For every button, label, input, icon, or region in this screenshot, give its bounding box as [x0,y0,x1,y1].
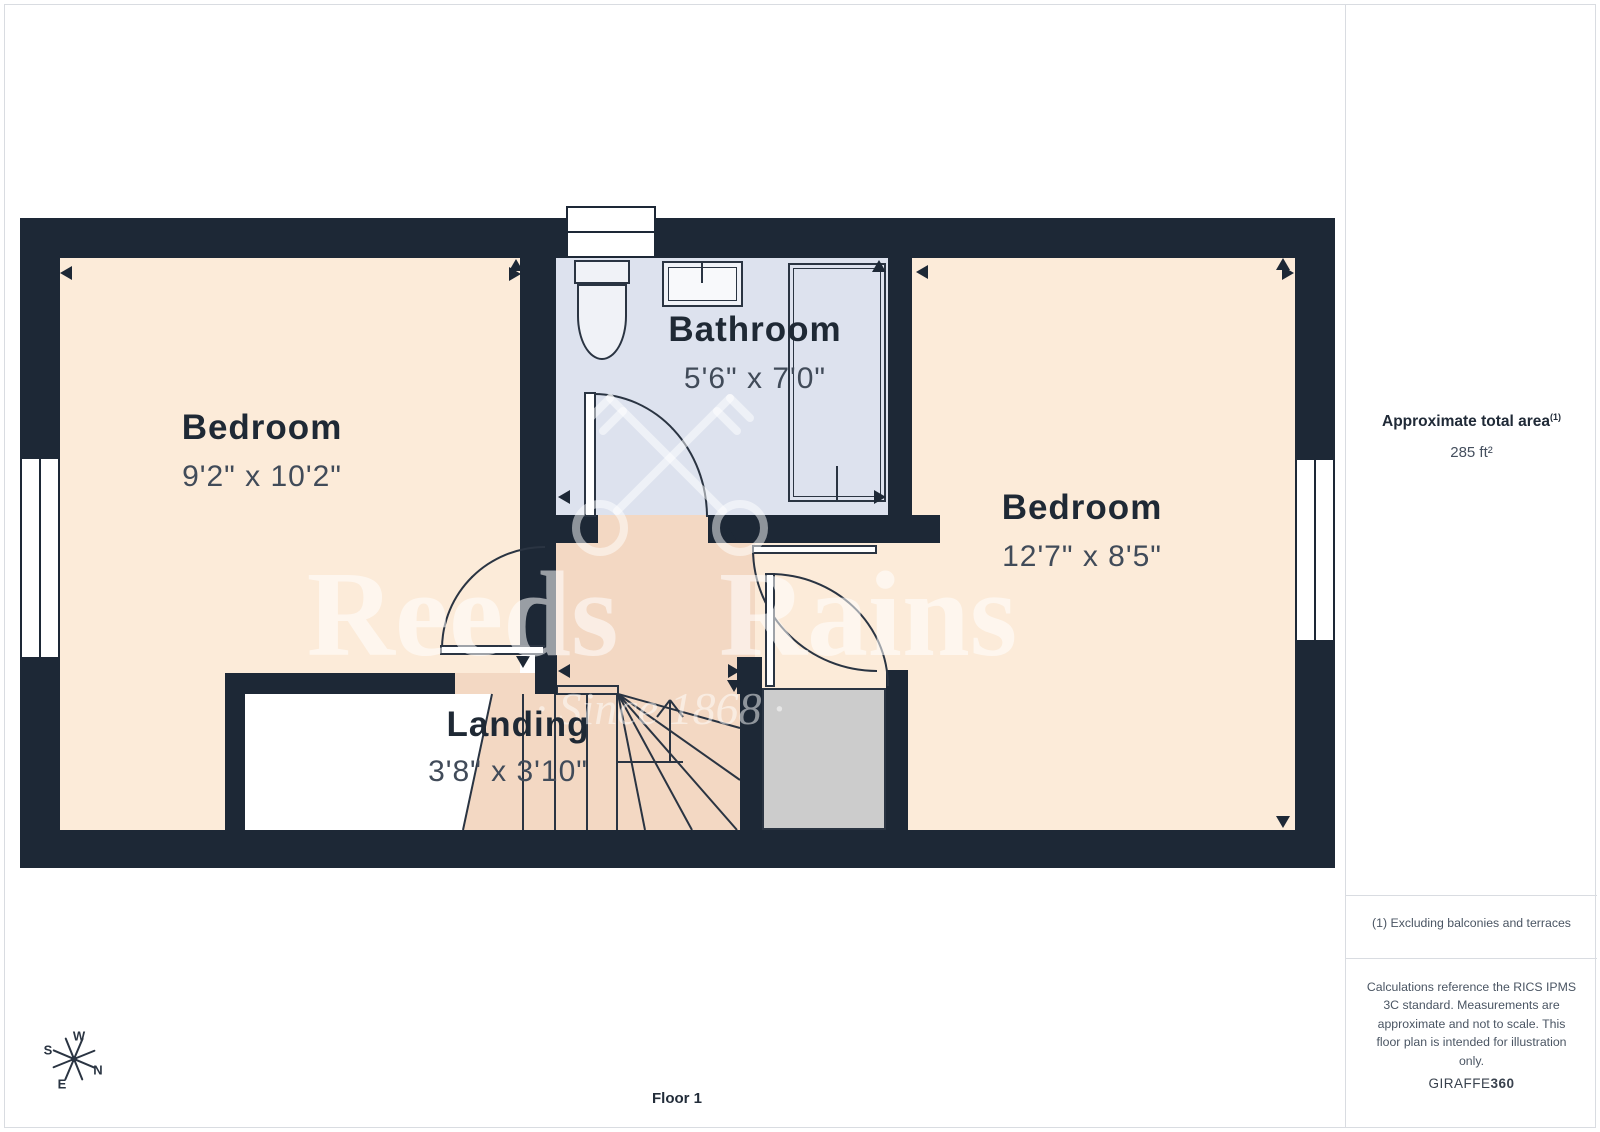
room-dims-bedroom-left: 9'2" x 10'2" [182,460,342,494]
dimension-arrow [558,490,570,504]
toilet-icon [574,260,630,284]
dimension-arrow [874,490,886,504]
dimension-arrow [516,656,530,668]
sidebar-divider [1346,895,1597,896]
compass-label-s: S [44,1043,53,1058]
total-area-superscript: (1) [1550,412,1561,422]
dimension-arrow [728,664,740,678]
room-dims-bathroom: 5'6" x 7'0" [684,362,826,396]
wall-bathroom-bottom-right [708,515,940,543]
dimension-arrow [1276,816,1290,828]
dimension-arrow [722,528,736,540]
window-mullion [39,459,41,657]
disclaimer-text: Calculations reference the RICS IPMS 3C … [1364,978,1579,1070]
wall-left-upper [20,218,60,457]
window-mullion [568,231,654,233]
brand-logo: GIRAFFE360 [1346,1076,1597,1091]
door-leaf [440,645,545,655]
dimension-arrow [558,664,570,678]
room-label-bedroom-left: Bedroom [182,408,343,448]
shower-drain-icon [836,466,838,502]
window-right [1295,458,1335,642]
floor-label: Floor 1 [652,1090,702,1107]
window-skylight [566,206,656,258]
dimension-arrow [1282,266,1294,280]
room-label-landing: Landing [446,705,589,745]
compass-rose-icon: W S N E [29,1014,119,1104]
compass-label-n: N [93,1063,102,1078]
dimension-arrow [916,265,928,279]
wall-right-upper [1295,218,1335,458]
sink-faucet-icon [701,261,703,283]
wall-right-lower [1295,640,1335,868]
door-threshold [455,673,537,694]
compass-label-w: W [73,1029,85,1044]
door-leaf [584,392,596,517]
wardrobe-icon [762,688,886,830]
sidebar-divider [1346,958,1597,959]
total-area-value: 285 ft² [1346,444,1597,461]
total-area-text: Approximate total area [1382,413,1550,430]
wall-bottom [20,830,1335,868]
room-label-bathroom: Bathroom [668,310,841,350]
wall-top [20,218,1335,258]
brand-name: GIRAFFE [1428,1076,1490,1091]
compass-label-e: E [58,1077,67,1092]
door-leaf [752,545,877,554]
room-label-bedroom-right: Bedroom [1002,488,1163,528]
area-footnote: (1) Excluding balconies and terraces [1346,916,1597,930]
window-mullion [1314,460,1316,640]
wall-stub-landing-left [535,655,557,694]
floorplan-page: Reeds Rains · Since 1868 · Bedroom 9'2" … [0,0,1600,1132]
compass-center-dot [71,1056,77,1062]
bedroom-left-floor-strip [60,673,225,830]
dimension-arrow [509,267,521,281]
wall-bathroom-bedroom-right [888,258,912,515]
wall-left-lower [20,658,60,868]
wall-closet-right [886,670,908,830]
total-area-label: Approximate total area(1) [1346,412,1597,431]
door-leaf [765,573,775,687]
brand-suffix: 360 [1490,1076,1514,1091]
dimension-arrow [727,680,741,692]
dimension-arrow [60,266,72,280]
room-dims-bedroom-right: 12'7" x 8'5" [1002,540,1162,574]
room-dims-landing: 3'8" x 3'10" [428,755,588,789]
wall-closet-left [740,657,762,830]
info-sidebar: Approximate total area(1) 285 ft² (1) Ex… [1345,4,1597,1128]
wall-bedroom-left-bottom [225,673,455,694]
dimension-arrow [872,260,886,272]
wall-void-left [225,673,245,830]
wall-bathroom-bottom-left [548,515,598,543]
window-left [20,457,60,659]
